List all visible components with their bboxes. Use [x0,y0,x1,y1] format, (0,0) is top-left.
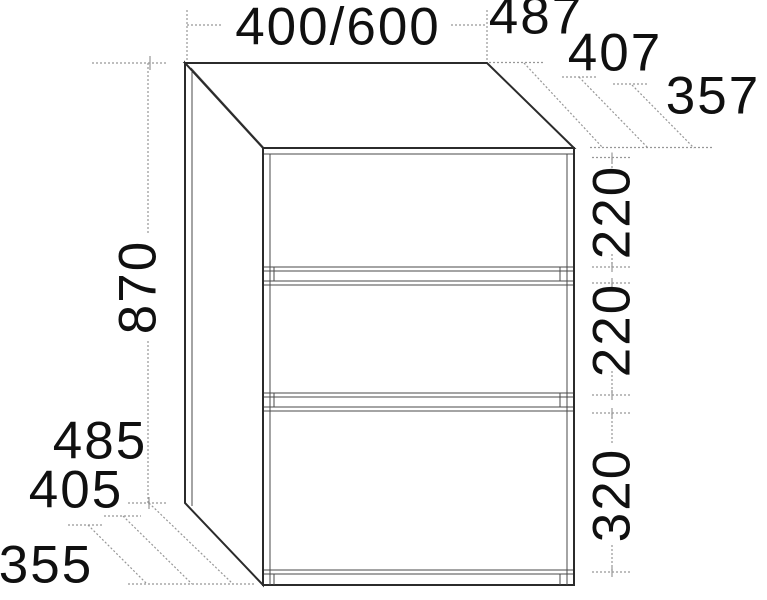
dimension-width: 400/600 [187,0,487,62]
dim-label-depth-top-3: 357 [666,67,760,126]
dim-label-height: 870 [109,240,168,334]
dimension-drawer-heights: 220 220 320 [583,153,642,578]
technical-drawing-page: 400/600 487 407 357 870 [0,0,767,600]
dim-label-depth-bottom-2: 405 [29,461,123,520]
cabinet-body [185,63,574,585]
dim-label-drawer-1-height: 220 [583,165,642,259]
dim-label-drawer-2-height: 220 [583,283,642,377]
dim-label-depth-top-2: 407 [568,24,662,83]
dim-label-drawer-3-height: 320 [583,448,642,542]
cabinet-front-face [263,148,574,585]
dim-label-depth-bottom-3: 355 [0,536,93,595]
cabinet-left-panel [185,63,263,585]
cabinet-dimension-drawing: 400/600 487 407 357 870 [0,0,767,600]
dim-label-width: 400/600 [235,0,441,57]
